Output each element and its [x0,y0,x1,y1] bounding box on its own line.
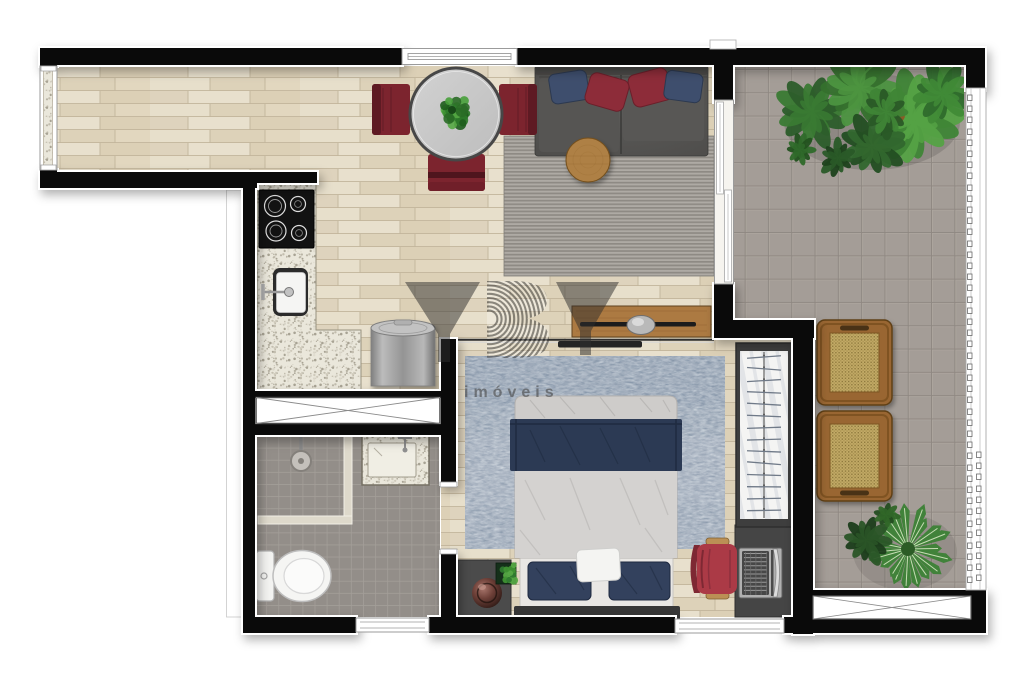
svg-text:imóveis: imóveis [464,384,559,401]
